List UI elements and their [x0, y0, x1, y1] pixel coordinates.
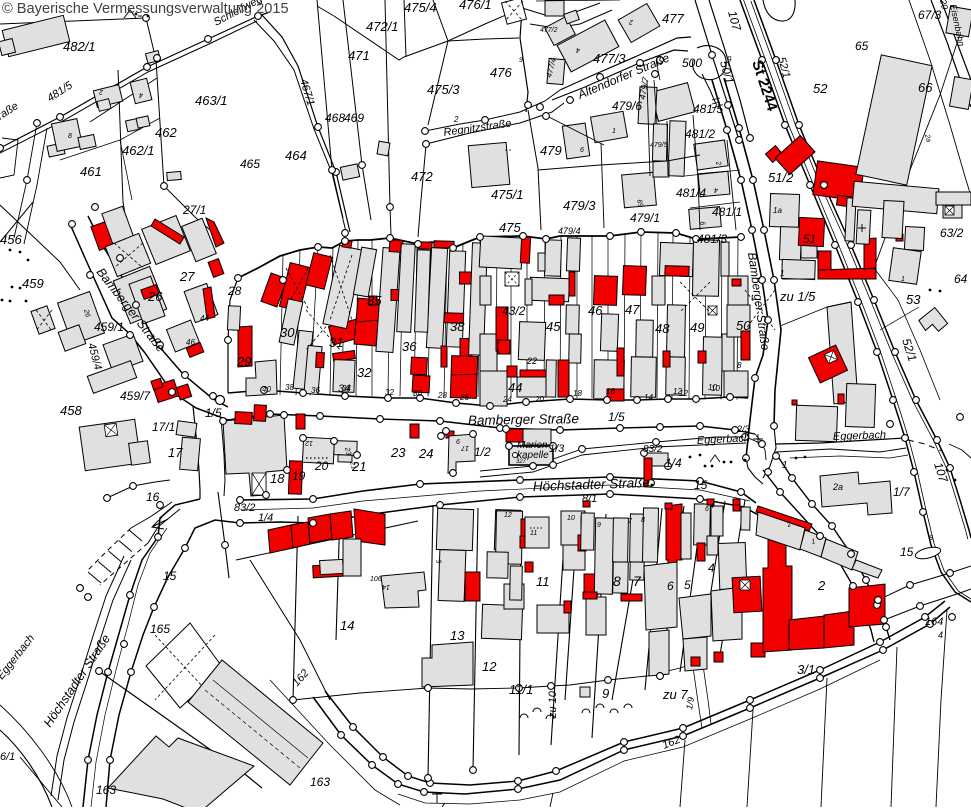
svg-text:1/2: 1/2: [474, 445, 491, 459]
svg-text:1/4: 1/4: [258, 512, 273, 524]
svg-text:6/1: 6/1: [0, 751, 15, 763]
svg-text:4: 4: [708, 561, 715, 575]
svg-text:27: 27: [179, 269, 195, 284]
svg-text:40: 40: [262, 385, 271, 394]
svg-text:14: 14: [644, 393, 653, 402]
svg-text:6: 6: [580, 147, 584, 154]
svg-text:8/1: 8/1: [582, 493, 597, 505]
svg-text:24: 24: [502, 395, 512, 404]
svg-text:459/1: 459/1: [94, 320, 124, 334]
svg-text:1/5: 1/5: [205, 406, 222, 420]
svg-text:30: 30: [413, 389, 422, 398]
svg-text:63/2: 63/2: [940, 226, 964, 240]
svg-text:15: 15: [694, 478, 708, 492]
svg-text:11: 11: [536, 574, 550, 589]
svg-text:27/1: 27/1: [182, 203, 206, 217]
svg-text:© Bayerische Vermessungsverwal: © Bayerische Vermessungsverwaltung 2015: [2, 1, 289, 17]
svg-text:479/1: 479/1: [630, 211, 660, 225]
svg-text:468: 468: [325, 111, 345, 125]
svg-text:472: 472: [411, 169, 433, 184]
svg-text:465: 465: [240, 157, 260, 171]
svg-text:65: 65: [855, 39, 869, 53]
svg-text:481/3: 481/3: [697, 232, 727, 246]
svg-text:10: 10: [567, 515, 575, 522]
svg-text:12: 12: [673, 387, 682, 396]
svg-text:51/2: 51/2: [768, 170, 794, 185]
svg-text:43/2: 43/2: [502, 304, 526, 318]
svg-text:479: 479: [540, 143, 562, 158]
svg-text:477/3: 477/3: [593, 51, 626, 66]
svg-text:2: 2: [629, 18, 634, 25]
svg-text:83/2: 83/2: [234, 502, 255, 514]
svg-text:6: 6: [667, 579, 674, 593]
svg-text:481/1: 481/1: [712, 205, 742, 219]
svg-text:2a: 2a: [832, 482, 843, 492]
svg-text:36: 36: [311, 386, 320, 395]
svg-text:464: 464: [285, 148, 307, 163]
svg-text:10: 10: [708, 383, 717, 392]
svg-text:11: 11: [530, 530, 537, 537]
svg-text:32: 32: [357, 365, 372, 380]
svg-text:18: 18: [573, 389, 582, 398]
svg-text:64: 64: [954, 272, 968, 286]
svg-text:49: 49: [690, 320, 704, 335]
svg-text:459/7: 459/7: [120, 389, 151, 403]
svg-text:481/5: 481/5: [693, 102, 723, 116]
svg-text:1/9: 1/9: [684, 696, 696, 710]
svg-text:38: 38: [285, 383, 294, 392]
svg-text:51: 51: [803, 232, 816, 246]
svg-text:31: 31: [329, 335, 343, 350]
svg-text:106: 106: [370, 576, 382, 583]
svg-text:15: 15: [900, 545, 914, 559]
svg-text:67/3: 67/3: [918, 8, 942, 22]
svg-text:2: 2: [817, 578, 826, 593]
svg-text:456: 456: [0, 232, 22, 247]
svg-text:14: 14: [382, 583, 390, 590]
svg-text:17/1: 17/1: [152, 420, 175, 434]
svg-text:17: 17: [460, 444, 469, 451]
svg-text:1: 1: [782, 460, 788, 471]
svg-text:475/1: 475/1: [491, 187, 524, 202]
svg-text:44: 44: [508, 380, 522, 395]
svg-text:28: 28: [227, 284, 242, 298]
svg-text:46: 46: [186, 338, 195, 347]
svg-text:28: 28: [437, 391, 447, 400]
svg-text:477/2: 477/2: [540, 27, 558, 34]
svg-text:476/1: 476/1: [459, 0, 492, 12]
svg-text:481/2: 481/2: [685, 127, 715, 141]
svg-text:462/1: 462/1: [122, 143, 155, 158]
svg-text:20: 20: [534, 395, 544, 404]
svg-text:1/5: 1/5: [608, 410, 625, 424]
svg-text:9: 9: [519, 57, 523, 64]
svg-text:1/4: 1/4: [665, 456, 682, 470]
svg-text:20: 20: [314, 459, 329, 473]
svg-text:36: 36: [402, 339, 417, 354]
svg-text:2: 2: [453, 115, 459, 124]
svg-text:48: 48: [655, 321, 670, 336]
svg-text:66: 66: [918, 80, 933, 95]
svg-text:8: 8: [929, 535, 933, 542]
svg-text:zu 10: zu 10: [547, 690, 559, 719]
svg-text:479/5: 479/5: [650, 142, 668, 149]
svg-text:163: 163: [96, 783, 116, 797]
svg-text:1: 1: [612, 128, 616, 135]
svg-text:462: 462: [155, 125, 177, 140]
svg-text:458: 458: [60, 403, 82, 418]
svg-text:6: 6: [705, 506, 709, 513]
svg-text:8: 8: [68, 133, 72, 140]
svg-text:11/1: 11/1: [509, 682, 533, 697]
svg-text:163: 163: [310, 775, 330, 789]
svg-text:479/3: 479/3: [563, 198, 596, 213]
svg-text:1/7: 1/7: [893, 485, 911, 499]
svg-text:1a: 1a: [773, 206, 782, 215]
svg-text:29: 29: [236, 354, 251, 369]
svg-text:35: 35: [367, 293, 382, 308]
svg-text:34: 34: [342, 384, 351, 393]
svg-text:9: 9: [597, 522, 601, 529]
svg-text:1: 1: [780, 269, 784, 278]
svg-text:3/1: 3/1: [797, 662, 815, 677]
svg-text:zu 7: zu 7: [662, 687, 688, 702]
svg-text:14: 14: [340, 618, 354, 633]
svg-text:1: 1: [901, 276, 905, 283]
svg-text:9: 9: [602, 686, 609, 701]
svg-text:479/4: 479/4: [558, 226, 581, 236]
svg-text:482/1: 482/1: [63, 39, 96, 54]
svg-text:13: 13: [450, 628, 465, 643]
svg-text:7: 7: [633, 573, 642, 589]
svg-text:471: 471: [348, 48, 370, 63]
svg-text:165: 165: [150, 622, 170, 636]
svg-text:32: 32: [385, 388, 394, 397]
svg-text:481/4: 481/4: [676, 186, 706, 200]
svg-text:475/4: 475/4: [404, 0, 437, 15]
svg-text:477: 477: [662, 11, 684, 26]
svg-text:461: 461: [80, 164, 102, 179]
svg-text:44: 44: [200, 314, 209, 323]
svg-text:24: 24: [418, 446, 433, 461]
svg-text:53: 53: [906, 292, 921, 307]
svg-text:8: 8: [737, 361, 742, 370]
svg-text:4: 4: [938, 630, 943, 640]
svg-text:18: 18: [270, 471, 285, 486]
svg-text:17: 17: [168, 445, 183, 460]
svg-text:500: 500: [682, 56, 702, 70]
svg-text:16: 16: [146, 490, 160, 504]
svg-text:6: 6: [456, 439, 460, 446]
svg-text:4: 4: [714, 186, 718, 193]
svg-text:Eggerbach: Eggerbach: [833, 429, 887, 443]
svg-text:Bamberger Straße: Bamberger Straße: [468, 411, 579, 428]
svg-text:8: 8: [641, 517, 645, 524]
svg-text:476: 476: [490, 65, 512, 80]
svg-text:12: 12: [482, 659, 497, 674]
svg-text:19: 19: [292, 469, 306, 483]
svg-text:46: 46: [588, 303, 603, 318]
svg-text:83/2: 83/2: [643, 444, 663, 455]
svg-text:8: 8: [613, 573, 621, 589]
svg-text:4: 4: [139, 91, 143, 98]
svg-text:22: 22: [526, 356, 537, 366]
svg-text:45: 45: [546, 319, 561, 334]
svg-text:2: 2: [99, 88, 104, 95]
svg-text:459: 459: [22, 276, 44, 291]
svg-text:463/1: 463/1: [195, 93, 228, 108]
svg-text:30: 30: [280, 325, 295, 340]
svg-text:15: 15: [163, 569, 177, 583]
svg-text:12: 12: [504, 512, 512, 519]
svg-text:4: 4: [710, 503, 714, 510]
svg-text:23: 23: [390, 445, 406, 460]
svg-text:26: 26: [459, 393, 469, 402]
svg-text:38: 38: [450, 319, 465, 334]
svg-text:472/1: 472/1: [366, 19, 399, 34]
svg-text:327: 327: [516, 459, 527, 465]
svg-text:26: 26: [147, 289, 163, 304]
svg-text:zu 1/5: zu 1/5: [779, 289, 816, 304]
svg-text:50: 50: [736, 318, 751, 333]
svg-text:16: 16: [606, 387, 615, 396]
svg-text:12: 12: [305, 439, 313, 446]
svg-text:469: 469: [344, 111, 364, 125]
svg-text:4: 4: [576, 46, 580, 53]
svg-text:479/6: 479/6: [612, 99, 642, 113]
svg-text:5: 5: [684, 578, 691, 592]
svg-text:1/3: 1/3: [549, 443, 565, 455]
svg-text:52: 52: [813, 81, 828, 96]
svg-text:164: 164: [925, 616, 943, 628]
svg-text:475: 475: [499, 220, 521, 235]
svg-text:475/3: 475/3: [427, 82, 460, 97]
svg-text:47: 47: [625, 302, 640, 317]
